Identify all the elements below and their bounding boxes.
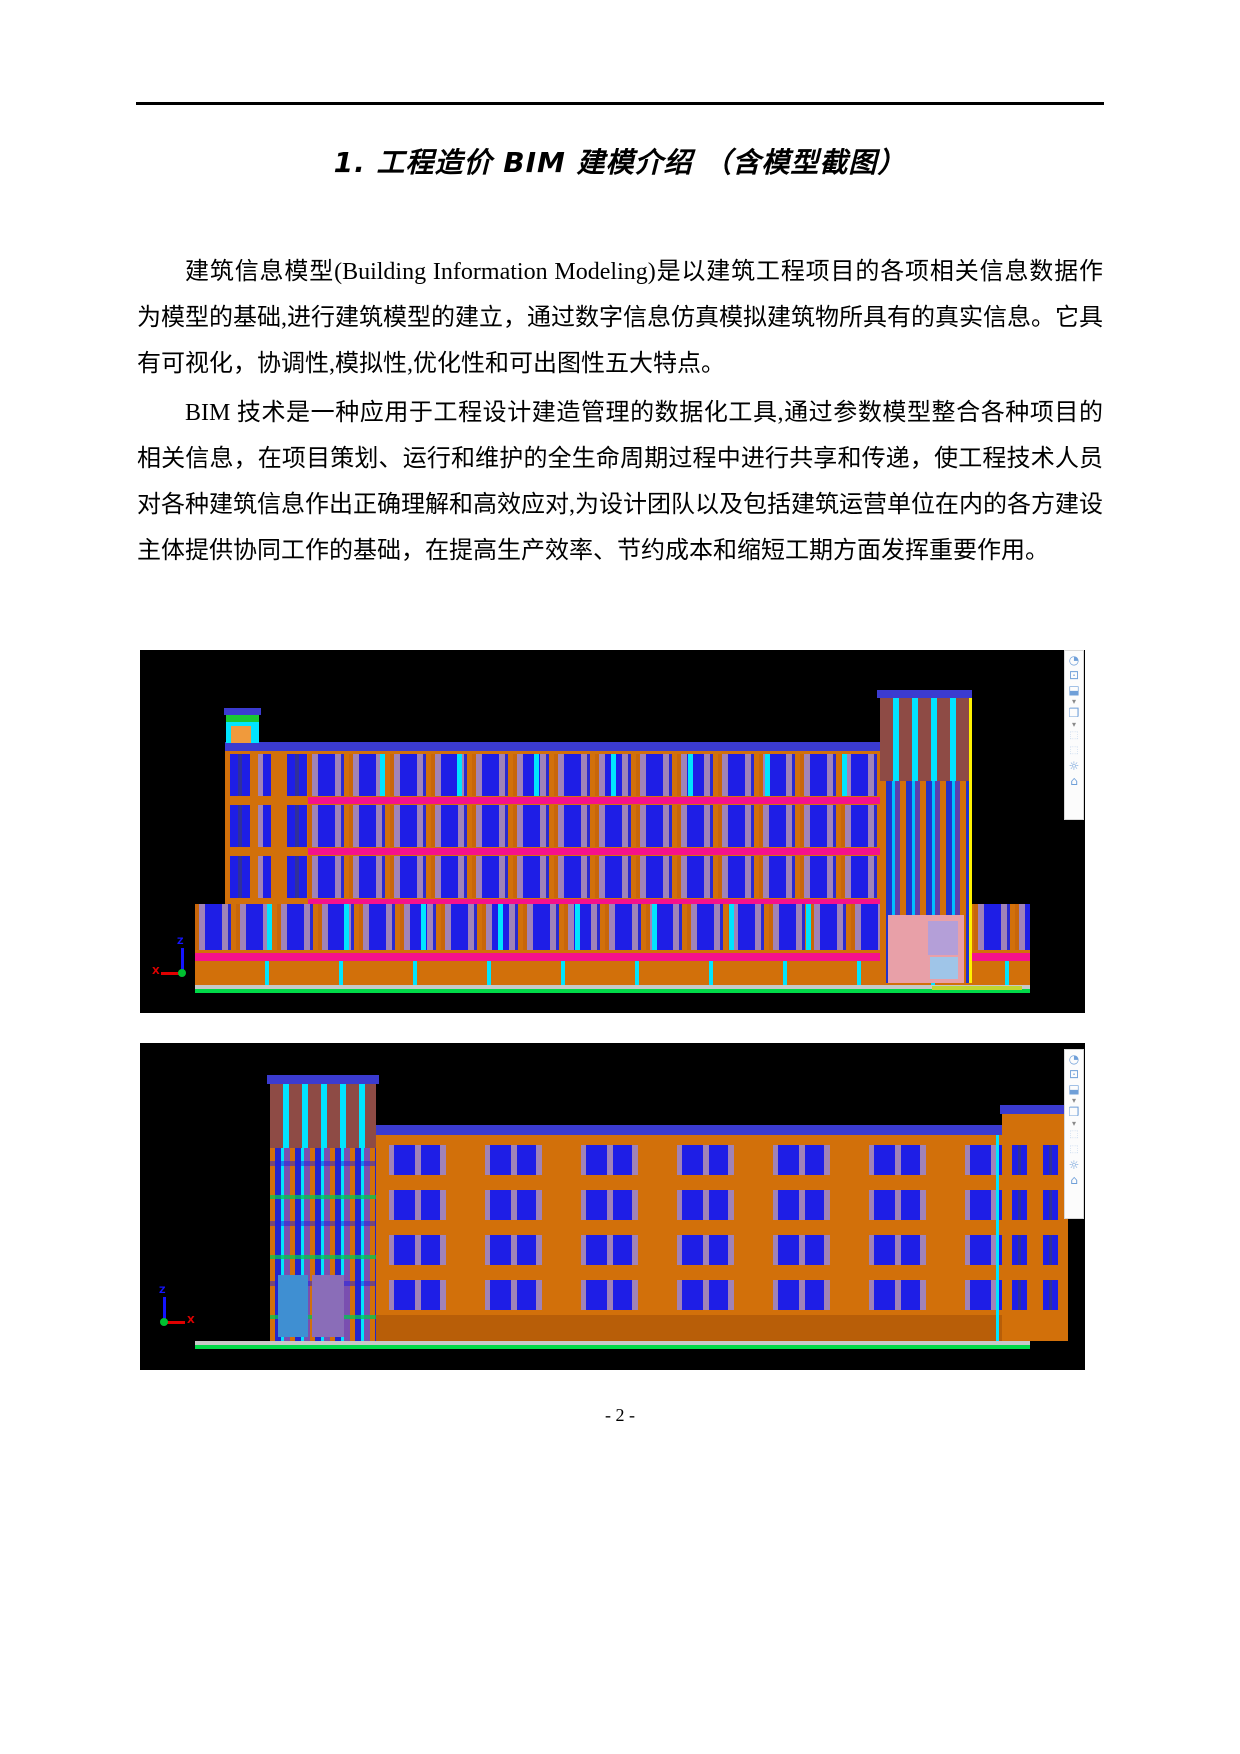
home-icon: ⌂	[1070, 1173, 1078, 1187]
window-row	[308, 805, 880, 847]
placeholder-icon: ⬚	[1069, 729, 1078, 743]
penthouse-body	[226, 722, 259, 743]
roof-penthouse	[226, 708, 259, 743]
steering-wheel-icon: ◔	[1069, 1052, 1079, 1066]
revit-navigation-bar: ◔ ⊡ ⬓ ▾ ❒ ▾ ⬚ ⬚ ☼ ⌂	[1064, 1049, 1084, 1219]
dropdown-arrow-icon: ▾	[1072, 721, 1076, 728]
placeholder-icon: ⬚	[1069, 1143, 1078, 1157]
paragraph-bim-definition: 建筑信息模型(Building Information Modeling)是以建…	[137, 249, 1103, 387]
window-row	[225, 856, 308, 898]
dropdown-arrow-icon: ▾	[1072, 1097, 1076, 1104]
building-tower-right	[1002, 1105, 1068, 1341]
dropdown-arrow-icon: ▾	[1072, 698, 1076, 705]
tower-cap	[877, 690, 972, 698]
revit-navigation-bar: ◔ ⊡ ⬓ ▾ ❒ ▾ ⬚ ⬚ ☼ ⌂	[1064, 650, 1084, 820]
floor-band	[308, 848, 880, 855]
placeholder-icon: ⬚	[1069, 744, 1078, 758]
joint-line	[996, 1135, 999, 1341]
view-cube-icon: ❒	[1069, 706, 1080, 720]
penthouse-cap	[224, 708, 261, 715]
building-facade	[376, 1125, 1002, 1341]
document-page: 1. 工程造价 BIM 建模介绍 （含模型截图） 建筑信息模型(Building…	[0, 0, 1240, 1754]
header-rule	[136, 102, 1104, 105]
roof-band	[370, 1125, 1008, 1135]
axis-z-label: Z	[177, 937, 184, 947]
section-box-icon: ⬓	[1068, 1082, 1079, 1096]
floor-band	[308, 797, 880, 804]
window-row	[308, 754, 880, 796]
tower-upper	[270, 1084, 376, 1148]
tower-upper	[880, 698, 972, 781]
steering-wheel-icon: ◔	[1069, 653, 1079, 667]
tower-cap	[267, 1075, 379, 1084]
window-row	[376, 1145, 1002, 1175]
building-facade	[225, 751, 880, 904]
axis-origin	[178, 969, 186, 977]
zoom-2d-icon: ⊡	[1069, 668, 1079, 682]
window-row	[1006, 1280, 1064, 1310]
sun-shading-icon: ☼	[1069, 759, 1080, 773]
zoom-2d-icon: ⊡	[1069, 1067, 1079, 1081]
tower-edge-line	[969, 698, 972, 983]
window-row	[376, 1235, 1002, 1265]
sun-shading-icon: ☼	[1069, 1158, 1080, 1172]
window-row	[1006, 1190, 1064, 1220]
tower-pink-panel	[888, 915, 964, 983]
base-spandrel	[376, 1315, 1002, 1341]
section-box-icon: ⬓	[1068, 683, 1079, 697]
building-tower-left	[270, 1075, 376, 1341]
home-icon: ⌂	[1070, 774, 1078, 788]
orientation-axis: Z X	[155, 1291, 203, 1339]
placeholder-icon: ⬚	[1069, 1128, 1078, 1142]
dropdown-arrow-icon: ▾	[1072, 1120, 1076, 1127]
stair-glazing	[312, 1275, 344, 1337]
bim-model-screenshot-2: Z X ◔ ⊡ ⬓ ▾ ❒ ▾ ⬚ ⬚ ☼ ⌂	[140, 1043, 1085, 1370]
bim-model-screenshot-1: Z X ◔ ⊡ ⬓ ▾ ❒ ▾ ⬚ ⬚ ☼ ⌂	[140, 650, 1085, 1013]
window-row	[376, 1190, 1002, 1220]
axis-z-label: Z	[159, 1286, 166, 1296]
ground-line	[195, 1345, 1030, 1349]
page-title: 1. 工程造价 BIM 建模介绍 （含模型截图）	[0, 141, 1240, 181]
window-row	[308, 856, 880, 898]
ground-line	[195, 989, 1030, 993]
window-row	[225, 754, 308, 796]
page-number: - 2 -	[0, 1405, 1240, 1426]
ramp-strip	[932, 986, 1022, 990]
paragraph-bim-technology: BIM 技术是一种应用于工程设计建造管理的数据化工具,通过参数模型整合各种项目的…	[137, 390, 1103, 574]
window-row	[1006, 1235, 1064, 1265]
window-row	[1006, 1145, 1064, 1175]
axis-x-label: X	[187, 1315, 195, 1326]
roof-band	[225, 742, 883, 751]
view-cube-icon: ❒	[1069, 1105, 1080, 1119]
orientation-axis: Z X	[155, 942, 203, 990]
penthouse-band	[226, 715, 259, 722]
stair-glazing	[278, 1275, 308, 1337]
window-row	[225, 805, 308, 847]
building-tower	[880, 690, 972, 983]
axis-x-arrow	[165, 1321, 185, 1324]
tower-cap	[1000, 1105, 1070, 1114]
axis-origin	[160, 1318, 168, 1326]
axis-x-label: X	[152, 966, 160, 977]
window-row	[376, 1280, 1002, 1310]
